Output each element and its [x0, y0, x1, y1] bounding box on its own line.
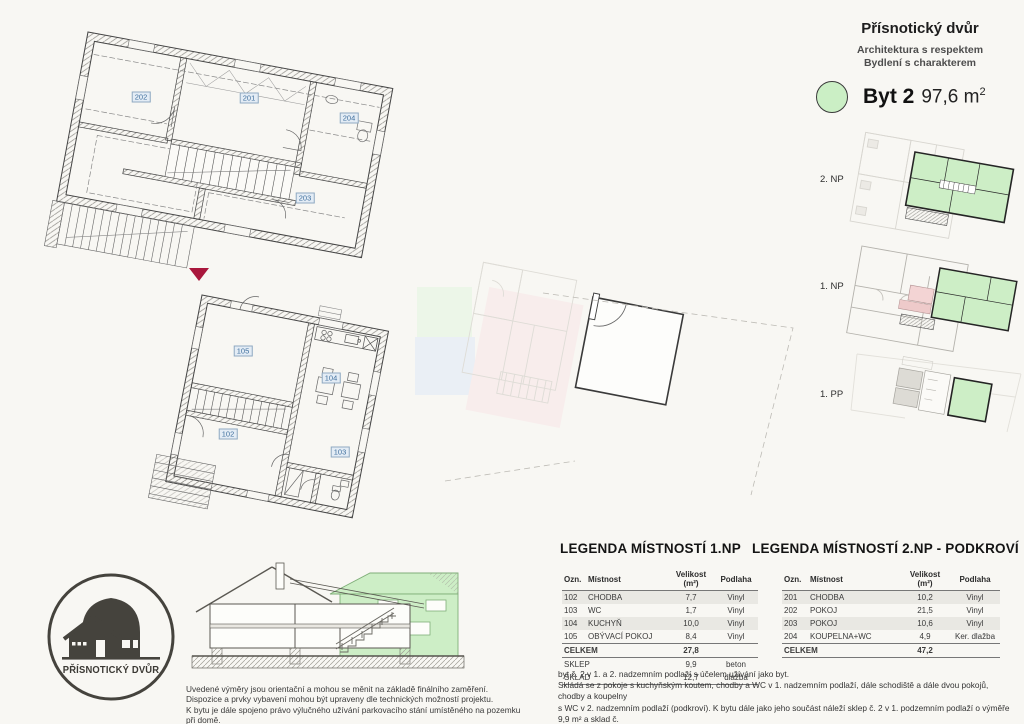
highlight-pink: [908, 285, 934, 304]
project-subtitle: Architektura s respektem Bydlení s chara…: [828, 44, 1012, 70]
plan-sheet: Přísnotický dvůr Architektura s respekte…: [0, 0, 1024, 724]
col-velikost: Velikost (m²): [900, 568, 950, 591]
description-line-2: Skládá se z pokoje s kuchyňským koutem, …: [558, 680, 1016, 702]
table-row: 103WC1,7Vinyl: [562, 604, 758, 617]
header: Přísnotický dvůr Architektura s respekte…: [828, 20, 1012, 70]
total-row: CELKEM 47,2: [782, 644, 1000, 658]
outer-walls: [57, 32, 393, 258]
legend-2np-table: Ozn. Místnost Velikost (m²) Podlaha 201C…: [782, 568, 1000, 658]
table-row: 102CHODBA7,7Vinyl: [562, 591, 758, 605]
table-row: 105OBÝVACÍ POKOJ8,4Vinyl: [562, 630, 758, 644]
legend-2np-rows: 201CHODBA10,2Vinyl202POKOJ21,5Vinyl203PO…: [782, 591, 1000, 644]
room-label-203: 203: [296, 193, 315, 204]
mini-plan-1np: [843, 246, 1024, 351]
disclaimer-text: Uvedené výměry jsou orientační a mohou s…: [186, 684, 531, 724]
entrance-arrow: [189, 268, 209, 281]
col-podlaha: Podlaha: [714, 568, 758, 591]
floor-label-1pp: 1. PP: [820, 389, 843, 400]
highlight-1np: [931, 268, 1016, 331]
apartment-color-dot: [816, 81, 848, 113]
room-label-103: 103: [331, 447, 350, 458]
floor-label-2np: 2. NP: [820, 174, 844, 185]
porch-steps: [318, 306, 342, 320]
interior-walls: [66, 41, 384, 248]
total-row: CELKEM 27,8: [562, 644, 758, 658]
col-ozn: Ozn.: [782, 568, 808, 591]
apartment-description: byt č. 2 v 1. a 2. nadzemním podlaží s ú…: [558, 669, 1016, 724]
table-row: 201CHODBA10,2Vinyl: [782, 591, 1000, 605]
floor-plan-2np: [0, 14, 420, 276]
project-title: Přísnotický dvůr: [828, 20, 1012, 37]
col-velikost: Velikost (m²): [668, 568, 714, 591]
table-row: 202POKOJ21,5Vinyl: [782, 604, 1000, 617]
disclaimer-line-3: K bytu je dále spojeno právo výlučného u…: [186, 705, 531, 724]
table-row: 204KOUPELNA+WC4,9Ker. dlažba: [782, 630, 1000, 644]
gray-room-2: [893, 388, 919, 408]
legend-1np-title: LEGENDA MÍSTNOSTÍ 1.NP: [560, 541, 741, 556]
col-ozn: Ozn.: [562, 568, 586, 591]
room-label-104: 104: [322, 373, 341, 384]
exterior-stair-1np: [148, 454, 215, 509]
highlight-1pp: [948, 378, 992, 422]
logo-emblem: [44, 570, 178, 704]
apartment-name: Byt 2: [863, 85, 914, 109]
subtitle-line-2: Bydlení s charakterem: [828, 57, 1012, 70]
table-row: 203POKOJ10,6Vinyl: [782, 617, 1000, 630]
room-label-204: 204: [340, 113, 359, 124]
legend-1np-table: Ozn. Místnost Velikost (m²) Podlaha 102C…: [562, 568, 758, 685]
logo: PŘÍSNOTICKÝ DVŮR: [44, 570, 178, 704]
table-row: 104KUCHYŇ10,0Vinyl: [562, 617, 758, 630]
mini-stair-1np: [900, 314, 935, 330]
ghost-tints: [415, 287, 584, 428]
room-label-102: 102: [219, 429, 238, 440]
floor-plan-1np: [55, 262, 435, 512]
barn-icon: [62, 598, 160, 660]
room-label-105: 105: [234, 346, 253, 357]
subtitle-line-1: Architektura s respektem: [828, 44, 1012, 57]
mini-plan-1pp: [845, 352, 1024, 434]
section-illustration: [190, 560, 470, 675]
room-label-202: 202: [132, 92, 151, 103]
logo-text: PŘÍSNOTICKÝ DVŮR: [48, 665, 174, 676]
gray-room-1: [896, 368, 923, 390]
col-mistnost: Místnost: [808, 568, 900, 591]
floor-label-1np: 1. NP: [820, 281, 844, 292]
site-ghost-plan: [415, 265, 815, 505]
legend-1np-rows: 102CHODBA7,7Vinyl103WC1,7Vinyl104KUCHYŇ1…: [562, 591, 758, 644]
apartment-area: 97,6 m2: [921, 86, 985, 108]
description-line-3: s WC v 2. nadzemním podlaží (podkroví). …: [558, 703, 1016, 724]
description-line-1: byt č. 2 v 1. a 2. nadzemním podlaží s ú…: [558, 669, 1016, 680]
disclaimer-line-1: Uvedené výměry jsou orientační a mohou s…: [186, 684, 531, 694]
legend-2np-title: LEGENDA MÍSTNOSTÍ 2.NP - PODKROVÍ: [752, 541, 1019, 556]
apartment-badge: Byt 2 97,6 m2: [816, 81, 986, 113]
mini-plan-2np: [845, 136, 1024, 238]
room-label-201: 201: [240, 93, 259, 104]
disclaimer-line-2: Dispozice a prvky vybavení mohou být upr…: [186, 694, 531, 704]
col-podlaha: Podlaha: [950, 568, 1000, 591]
col-mistnost: Místnost: [586, 568, 668, 591]
